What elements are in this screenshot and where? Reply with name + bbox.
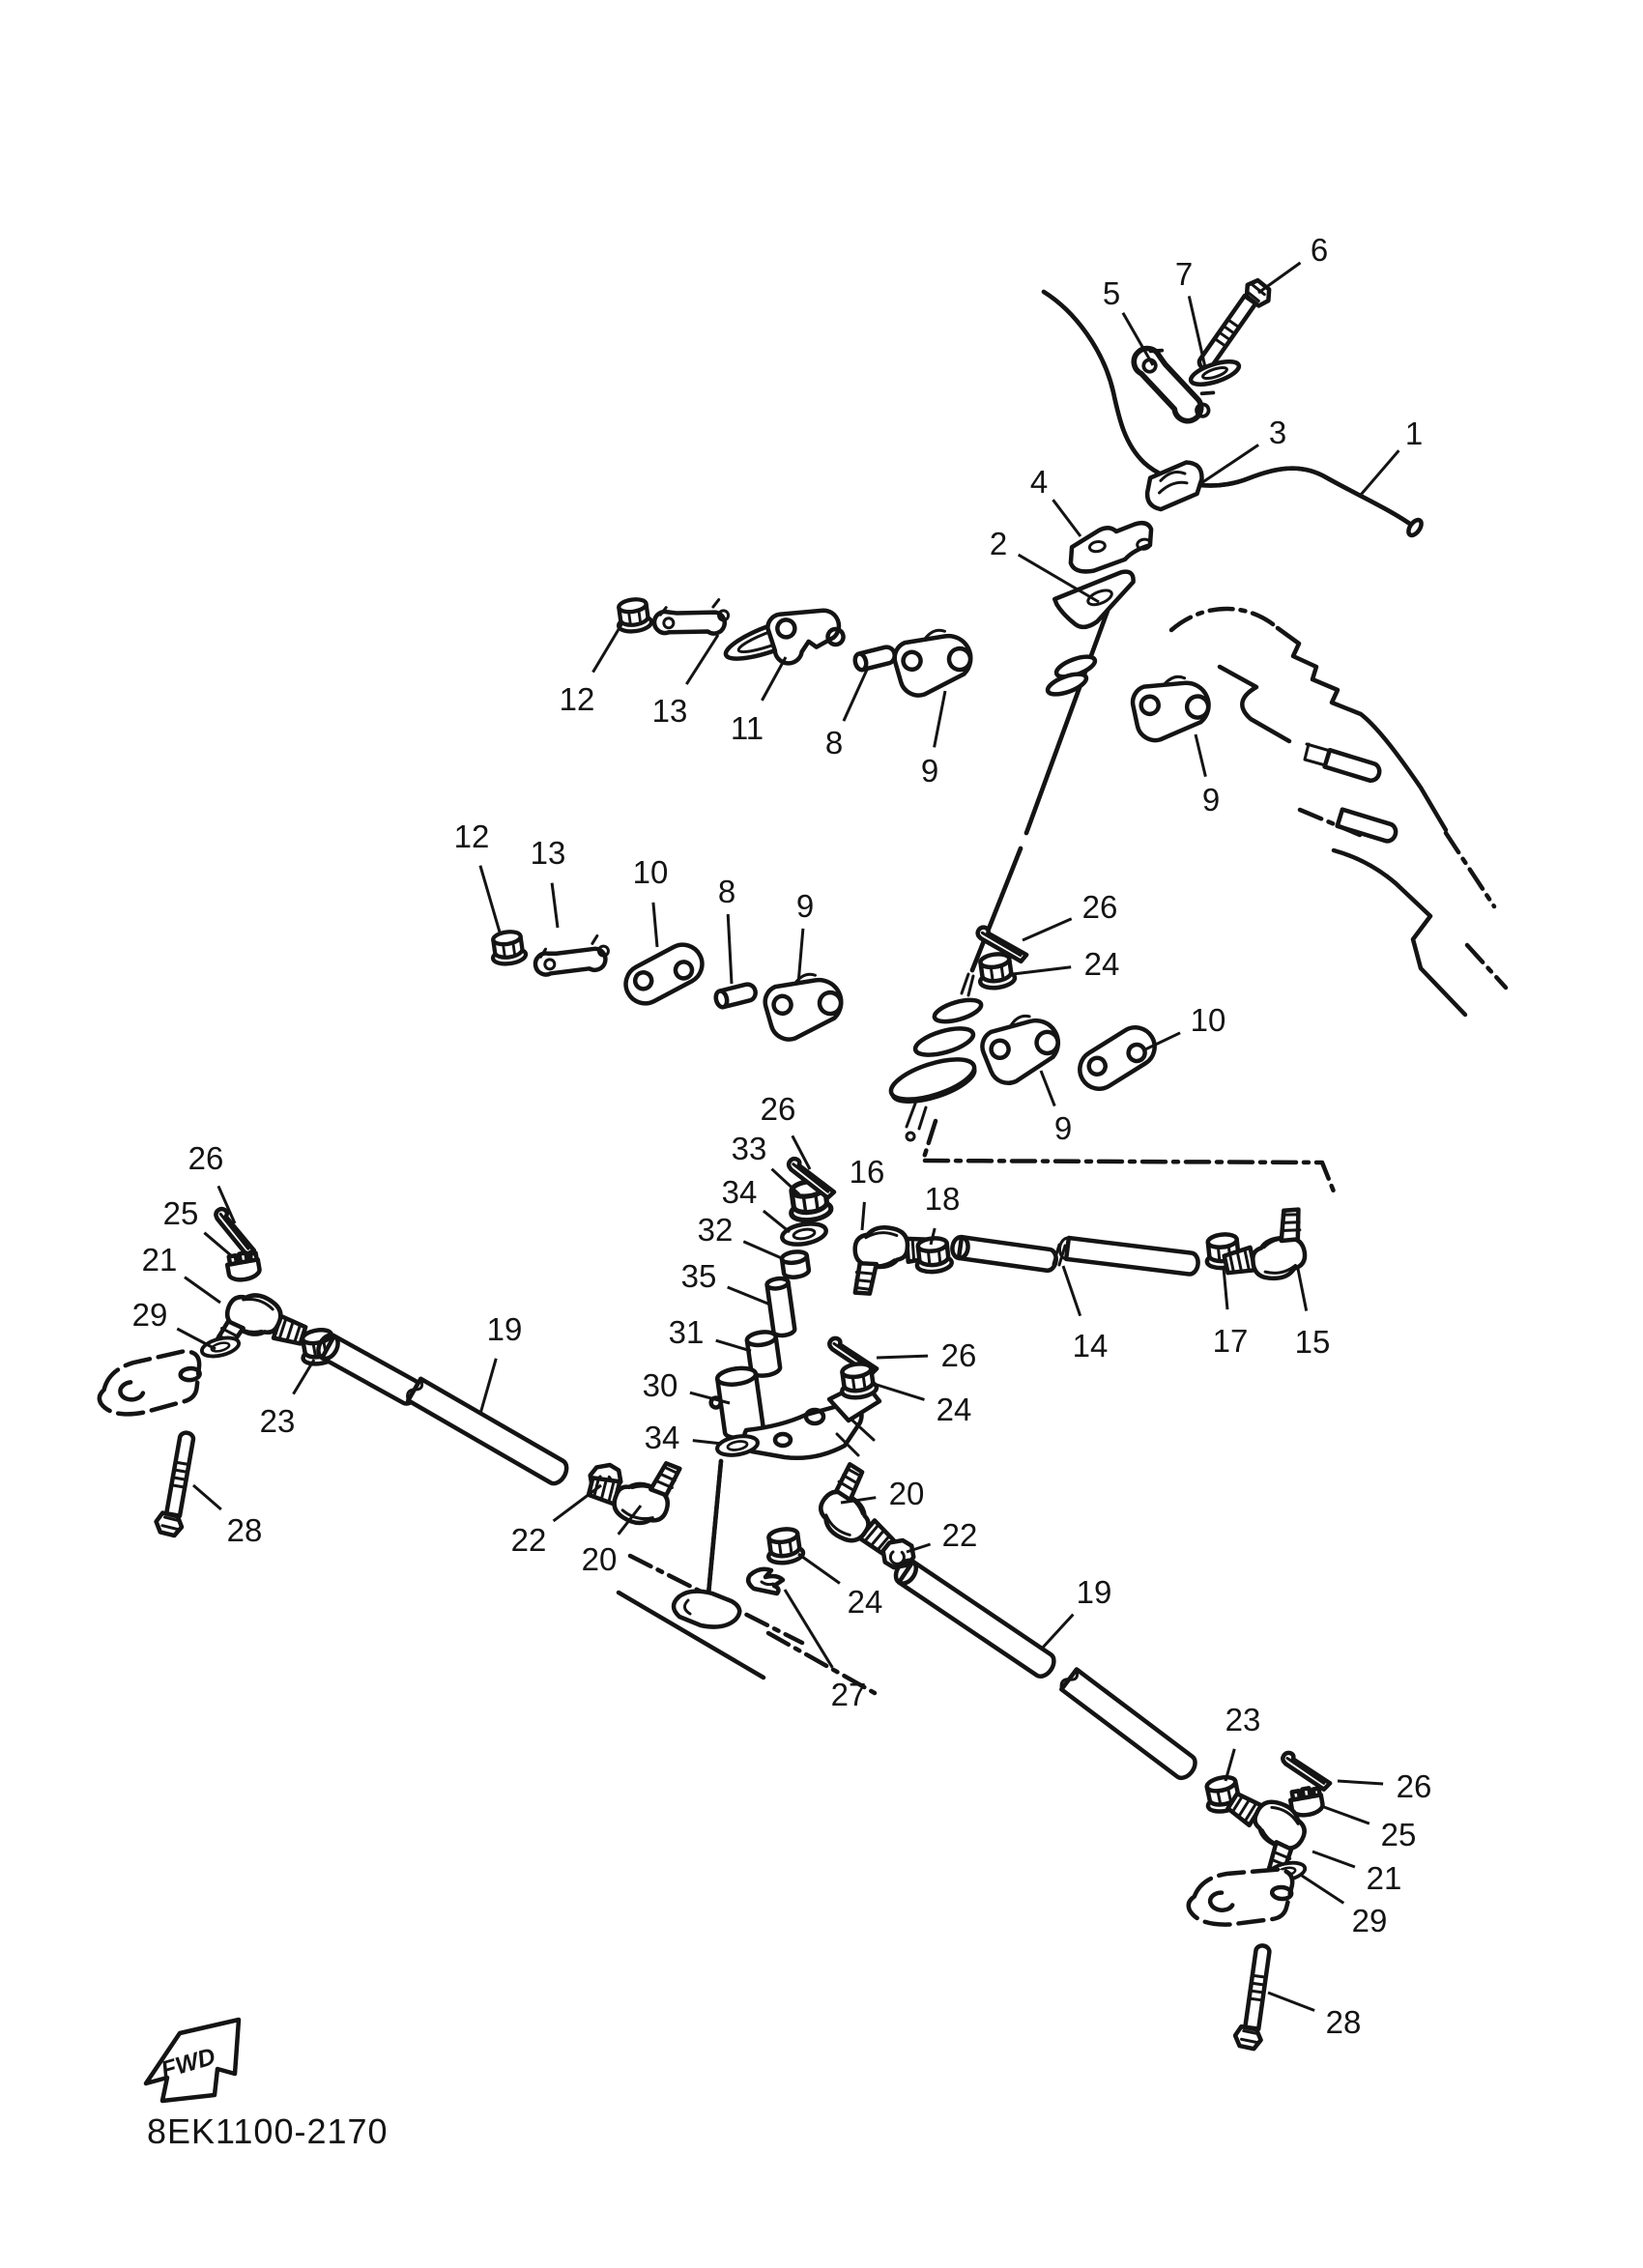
callout-6: 6 [1311,232,1328,268]
callout-30: 30 [643,1367,678,1403]
shaft-clamp [1129,672,1214,744]
callout-26: 26 [188,1140,224,1176]
callout-15: 15 [1295,1324,1331,1360]
callout-5: 5 [1103,275,1120,311]
cotter-pin [1278,1751,1336,1791]
callout-21: 21 [142,1242,178,1278]
callout-leader-15 [1298,1269,1307,1311]
callout-leader-13 [686,635,718,684]
tie-rod-right [892,1557,1199,1782]
callout-leader-29 [1302,1876,1343,1903]
stud-nut [977,952,1016,990]
shaft-clamp [890,623,978,700]
callout-31: 31 [669,1314,705,1350]
callout-leader-25 [204,1233,232,1256]
parts-diagram-page: FWD 8EK1100-2170 12345678899991010111212… [0,0,1643,2268]
callout-leader-6 [1258,263,1301,293]
tie-rod-end [213,1287,311,1374]
callout-3: 3 [1269,415,1286,450]
callout-labels: 1234567889999101011121213131415161718191… [132,232,1432,2040]
callout-leader-23 [294,1360,315,1394]
callout-20: 20 [582,1541,618,1577]
callout-13: 13 [652,693,688,729]
callout-24: 24 [1084,946,1120,982]
callout-9: 9 [1202,782,1220,818]
callout-26: 26 [761,1091,796,1127]
callout-leader-34 [693,1441,722,1444]
callout-21: 21 [1367,1860,1402,1896]
callout-leader-28 [1268,1993,1314,2011]
callout-12: 12 [560,681,595,717]
callout-26: 26 [1397,1768,1432,1804]
callout-20: 20 [889,1476,925,1511]
callout-12: 12 [454,818,490,854]
callout-leader-34 [764,1211,790,1232]
callout-25: 25 [163,1195,199,1231]
link-plate [620,938,709,1011]
callout-leader-7 [1189,296,1205,367]
callout-32: 32 [698,1212,734,1248]
kingpin-shaft [674,1461,739,1627]
callout-19: 19 [1077,1574,1112,1610]
callout-leader-19 [480,1359,496,1414]
callout-25: 25 [1381,1817,1417,1852]
callout-leader-21 [1312,1852,1355,1867]
callout-leader-1 [1361,450,1398,495]
exploded-parts-diagram: FWD 8EK1100-2170 12345678899991010111212… [0,0,1643,2268]
column-washer [781,1220,828,1248]
column-bushing-upper [781,1250,809,1278]
callout-leader-4 [1053,500,1081,536]
callout-leader-12 [593,621,624,673]
callout-17: 17 [1213,1323,1249,1359]
callout-leader-29 [177,1329,216,1349]
callout-24: 24 [848,1584,883,1620]
callout-22: 22 [942,1517,978,1553]
callout-34: 34 [645,1420,680,1455]
link-joint [531,925,614,994]
callout-28: 28 [227,1512,263,1548]
callout-9: 9 [796,888,814,924]
handlebar-washer [1188,357,1241,388]
callout-4: 4 [1030,464,1048,500]
callout-34: 34 [722,1174,758,1210]
callout-27: 27 [831,1677,867,1712]
callout-14: 14 [1073,1328,1109,1364]
callout-26: 26 [941,1337,977,1373]
column-collar [766,1278,795,1336]
callout-28: 28 [1326,2004,1362,2040]
callout-leader-12 [480,866,501,935]
stud-nut [765,1527,804,1565]
link-plate [1073,1020,1162,1096]
callout-leader-26 [1338,1781,1383,1784]
callout-leader-13 [552,883,558,928]
diagram-code: 8EK1100-2170 [147,2111,389,2151]
callout-leader-35 [728,1287,770,1305]
callout-33: 33 [732,1131,767,1166]
shaft-pin [714,983,757,1009]
callout-leader-10 [653,903,657,947]
ball-joint-washer [200,1335,241,1360]
handle-crown [1066,520,1157,574]
callout-16: 16 [850,1154,885,1190]
callout-leader-14 [1063,1266,1081,1316]
callout-24: 24 [937,1392,972,1427]
callout-leader-9 [1196,734,1205,777]
callout-23: 23 [1225,1702,1261,1737]
knuckle-bolt [1234,1943,1275,2050]
callout-8: 8 [825,725,843,761]
steering-top-plate [1054,569,1143,635]
arm-washer [716,1433,760,1457]
fwd-arrow: FWD [146,2020,239,2101]
callout-23: 23 [260,1403,296,1439]
knuckle-arm [1188,1863,1294,1929]
callout-11: 11 [731,710,764,746]
shaft-clamp [761,967,849,1044]
frame-tube [1325,750,1382,783]
knuckle-bolt [155,1430,198,1536]
callout-29: 29 [1352,1903,1388,1938]
callout-leader-8 [844,670,867,721]
callout-13: 13 [531,835,566,871]
center-tie-rod [951,1236,1199,1275]
retainer-clip [748,1569,783,1593]
callout-2: 2 [990,526,1007,561]
tie-rod-left [314,1332,570,1487]
callout-leader-24 [798,1554,840,1584]
callout-leader-9 [1041,1071,1054,1106]
stud-nut [839,1362,878,1399]
knuckle-arm [97,1350,203,1416]
callout-leader-16 [862,1202,864,1230]
callout-9: 9 [921,753,938,789]
callout-leader-32 [743,1242,784,1259]
callout-leader-19 [1041,1615,1073,1650]
callout-leader-28 [193,1485,221,1509]
callout-9: 9 [1054,1110,1072,1146]
callout-1: 1 [1405,416,1423,451]
callout-leader-26 [1023,919,1072,940]
callout-35: 35 [681,1258,717,1294]
callout-leader-11 [762,657,786,701]
callout-26: 26 [1082,889,1118,925]
callout-7: 7 [1175,256,1193,292]
callout-10: 10 [1191,1002,1226,1038]
callout-10: 10 [633,854,669,890]
callout-leader-9 [935,691,945,747]
callout-leader-24 [1013,967,1071,974]
shaft-clamp [976,1007,1067,1089]
callout-leader-22 [554,1485,601,1521]
callout-19: 19 [487,1311,523,1347]
shaft-pin [853,646,896,672]
callout-8: 8 [718,874,735,909]
frame-outline-sketch [1171,609,1506,1015]
link-joint [650,589,733,652]
callout-22: 22 [511,1522,547,1558]
callout-18: 18 [925,1181,961,1217]
callout-leader-26 [877,1356,928,1358]
callout-leader-21 [185,1278,220,1303]
callout-leader-25 [1324,1807,1369,1823]
rod-nut [914,1237,952,1274]
callout-leader-8 [728,914,732,984]
callout-29: 29 [132,1297,168,1333]
frame-tube [1338,810,1398,844]
shaft-bracket [722,597,847,667]
callout-leader-24 [874,1384,925,1399]
cotter-pin [207,1207,264,1257]
link-nut [490,930,527,965]
